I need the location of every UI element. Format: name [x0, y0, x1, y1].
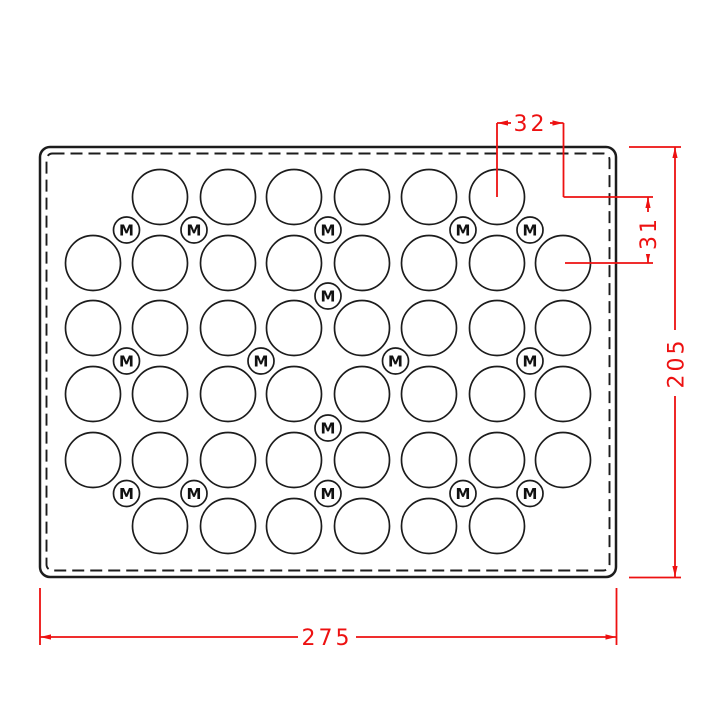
m-hole-label: M — [119, 222, 134, 240]
m-hole-label: M — [119, 353, 134, 371]
m-hole-label: M — [321, 222, 336, 240]
m-hole-label: M — [523, 353, 538, 371]
background — [0, 0, 720, 720]
m-hole-label: M — [456, 222, 471, 240]
m-hole-label: M — [523, 485, 538, 503]
m-hole-label: M — [321, 420, 336, 438]
m-hole-label: M — [456, 485, 471, 503]
m-hole-label: M — [388, 353, 403, 371]
m-hole-label: M — [187, 222, 202, 240]
technical-drawing: MMMMMMMMMMMMMMMM3231205275 — [0, 0, 720, 720]
dimension-label: 275 — [302, 626, 353, 651]
m-hole-label: M — [321, 485, 336, 503]
dimension-label: 205 — [665, 338, 690, 389]
drawing-canvas: MMMMMMMMMMMMMMMM3231205275 — [0, 0, 720, 720]
m-hole-label: M — [187, 485, 202, 503]
dimension-label: 31 — [637, 216, 662, 250]
m-hole-label: M — [119, 485, 134, 503]
m-hole-label: M — [254, 353, 269, 371]
m-hole-label: M — [523, 222, 538, 240]
dimension-label: 32 — [514, 112, 548, 137]
m-hole-label: M — [321, 288, 336, 306]
